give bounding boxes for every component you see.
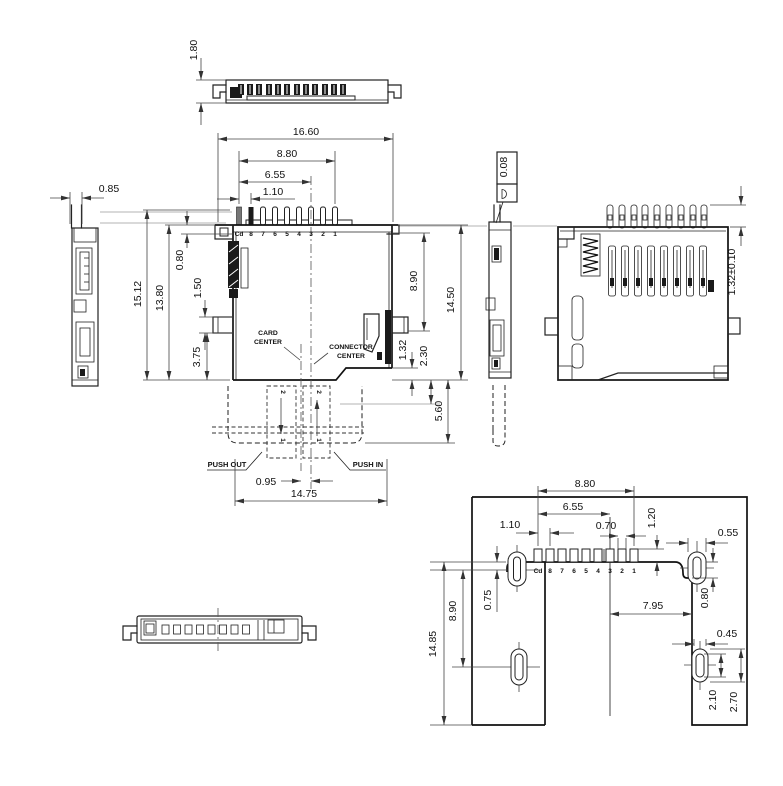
svg-text:6: 6 bbox=[273, 231, 277, 238]
card-mark: 1 bbox=[315, 438, 322, 442]
dim-edge-offset: 0.80 bbox=[699, 588, 711, 609]
svg-text:7: 7 bbox=[560, 568, 564, 575]
flatness-value: 0.08 bbox=[498, 157, 510, 178]
svg-text:8: 8 bbox=[548, 568, 552, 575]
dim-total-height: 15.12 bbox=[132, 281, 144, 307]
svg-text:5: 5 bbox=[285, 231, 289, 238]
svg-text:5: 5 bbox=[584, 568, 588, 575]
connector-drawing: 1.80 0.85 bbox=[0, 0, 783, 781]
pin-labels: Cd 8 7 6 5 4 3 2 1 bbox=[235, 231, 338, 238]
dim-slot-outer: 2.70 bbox=[728, 692, 740, 713]
svg-text:CENTER: CENTER bbox=[337, 353, 365, 360]
dim-tab-to-bottom: 3.75 bbox=[191, 347, 203, 368]
dim-side-width: 0.85 bbox=[50, 183, 119, 224]
push-out-label: PUSH OUT bbox=[207, 452, 262, 470]
contact-comb bbox=[238, 84, 346, 95]
pads bbox=[534, 549, 638, 562]
ejector-mechanism bbox=[364, 310, 391, 364]
card-outline bbox=[228, 386, 362, 443]
dim-hole-top-width: 0.55 bbox=[718, 527, 739, 539]
svg-text:CENTER: CENTER bbox=[254, 339, 282, 346]
push-out-zone bbox=[267, 386, 296, 458]
svg-text:3: 3 bbox=[309, 231, 313, 238]
svg-text:8: 8 bbox=[249, 231, 253, 238]
dim-step-height: 1.32 bbox=[397, 340, 409, 361]
footprint-view: Cd 8 7 6 5 4 3 2 1 bbox=[427, 478, 747, 725]
bottom-view bbox=[123, 608, 316, 652]
tab-right bbox=[392, 317, 408, 333]
dim-pin-to-center: 6.55 bbox=[265, 169, 286, 181]
dim-center-offset: 0.95 bbox=[256, 476, 277, 488]
svg-text:1: 1 bbox=[632, 568, 636, 575]
pins bbox=[607, 205, 707, 228]
mount-hole-bottom-left bbox=[452, 642, 540, 692]
dim-pad-to-center: 6.55 bbox=[563, 501, 584, 513]
dim-pin-span: 8.80 bbox=[277, 148, 298, 160]
dim-pin-pitch: 1.10 bbox=[263, 186, 284, 198]
dim-pad-width: 0.70 bbox=[596, 520, 617, 532]
dim-pad-pitch: 1.10 bbox=[500, 519, 521, 531]
svg-text:CARD: CARD bbox=[258, 330, 278, 337]
svg-text:7: 7 bbox=[261, 231, 265, 238]
dim-pad-height: 1.20 bbox=[646, 508, 658, 529]
right-mount-hook bbox=[388, 85, 401, 98]
contact-slots bbox=[609, 246, 707, 296]
svg-text:2: 2 bbox=[321, 231, 325, 238]
pad-labels: Cd 8 7 6 5 4 3 2 1 bbox=[534, 568, 637, 575]
dim-pad-span: 8.80 bbox=[575, 478, 596, 490]
push-in-zone bbox=[303, 386, 330, 458]
dim-card-protrusion: 5.60 bbox=[433, 401, 445, 422]
card-mark: 1 bbox=[279, 438, 286, 442]
mount-hole-top-right bbox=[680, 541, 714, 592]
drawing-sheet: 1.80 0.85 bbox=[0, 0, 783, 781]
right-hook bbox=[302, 626, 316, 640]
left-mount-hook bbox=[213, 85, 226, 98]
left-hook bbox=[123, 626, 137, 640]
svg-text:3: 3 bbox=[608, 568, 612, 575]
dim-text: 1.32±0.10 bbox=[726, 249, 738, 296]
dim-total-height: 14.85 bbox=[427, 631, 439, 657]
dim-center-to-edge: 7.95 bbox=[643, 600, 664, 612]
dim-hole-span: 8.90 bbox=[447, 601, 459, 622]
dim-hole-offset-left: 0.75 bbox=[482, 590, 494, 611]
dim-height-right: 14.50 bbox=[445, 287, 457, 313]
svg-text:4: 4 bbox=[596, 568, 600, 575]
right-side-view bbox=[486, 205, 511, 446]
slider-bar bbox=[247, 96, 355, 100]
back-view: 1.32±0.10 bbox=[545, 186, 746, 380]
dims-right: 8.90 14.50 1.32 2.30 5.60 bbox=[340, 225, 468, 443]
front-elevation-view: 1.80 bbox=[188, 40, 401, 125]
svg-text:2: 2 bbox=[620, 568, 624, 575]
svg-text:Cd: Cd bbox=[534, 568, 543, 575]
profile-symbol-icon bbox=[502, 190, 507, 199]
svg-text:6: 6 bbox=[572, 568, 576, 575]
pin-8 bbox=[249, 207, 254, 225]
dim-card-bottom-offset: 2.30 bbox=[418, 346, 430, 367]
dim-hole-bottom-width: 0.45 bbox=[717, 628, 738, 640]
dims-top: 16.60 8.80 6.55 1.10 bbox=[217, 126, 393, 222]
dim-tab-height: 1.50 bbox=[192, 278, 204, 299]
card-mark: 2 bbox=[279, 390, 286, 394]
body-outline bbox=[558, 227, 728, 380]
dims-left: 15.12 13.80 0.80 1.50 3.75 bbox=[132, 210, 233, 380]
dims-footprint: 8.80 6.55 1.10 0.70 1.20 0.55 0.80 7.95 bbox=[427, 478, 745, 725]
pin-cd bbox=[237, 207, 242, 225]
dim-top-offset: 0.80 bbox=[174, 250, 186, 271]
gdt-callout: 0.08 bbox=[496, 152, 517, 223]
body-bottom bbox=[233, 368, 392, 380]
pins bbox=[237, 207, 338, 225]
tab-left bbox=[545, 318, 558, 335]
svg-text:PUSH OUT: PUSH OUT bbox=[208, 460, 247, 469]
dim-slot-inner: 2.10 bbox=[707, 690, 719, 711]
svg-text:Cd: Cd bbox=[235, 231, 244, 238]
dim-text: 1.80 bbox=[188, 40, 200, 61]
main-view: 2 1 2 1 Cd 8 7 6 5 4 3 2 1 CARD CENTER C… bbox=[132, 126, 468, 506]
card-mark: 2 bbox=[315, 390, 322, 394]
dim-text: 0.85 bbox=[99, 183, 120, 195]
dim-mount-width: 14.75 bbox=[291, 488, 317, 500]
card-center-label: CARD CENTER bbox=[254, 330, 300, 360]
svg-text:1: 1 bbox=[333, 231, 337, 238]
dim-total-width: 16.60 bbox=[293, 126, 319, 138]
spring-coil bbox=[581, 234, 600, 276]
svg-text:PUSH IN: PUSH IN bbox=[353, 460, 383, 469]
tab-right bbox=[728, 318, 740, 334]
contact-windows bbox=[162, 625, 250, 634]
svg-text:CONNECTOR: CONNECTOR bbox=[329, 344, 373, 351]
push-in-label: PUSH IN bbox=[334, 452, 386, 470]
left-side-view: 0.85 bbox=[50, 183, 119, 386]
svg-text:4: 4 bbox=[297, 231, 301, 238]
detent-spring bbox=[228, 241, 248, 298]
mount-hole-top-left bbox=[430, 545, 540, 592]
dim-depth-right: 8.90 bbox=[408, 271, 420, 292]
mount-hole-bottom-right bbox=[684, 641, 716, 690]
side-slot bbox=[572, 296, 583, 340]
body-outline bbox=[489, 222, 511, 378]
connector-center-label: CONNECTOR CENTER bbox=[314, 344, 373, 364]
tab-left bbox=[213, 317, 233, 333]
dim-front-height: 1.80 bbox=[188, 40, 226, 125]
dim-body-height: 13.80 bbox=[154, 285, 166, 311]
